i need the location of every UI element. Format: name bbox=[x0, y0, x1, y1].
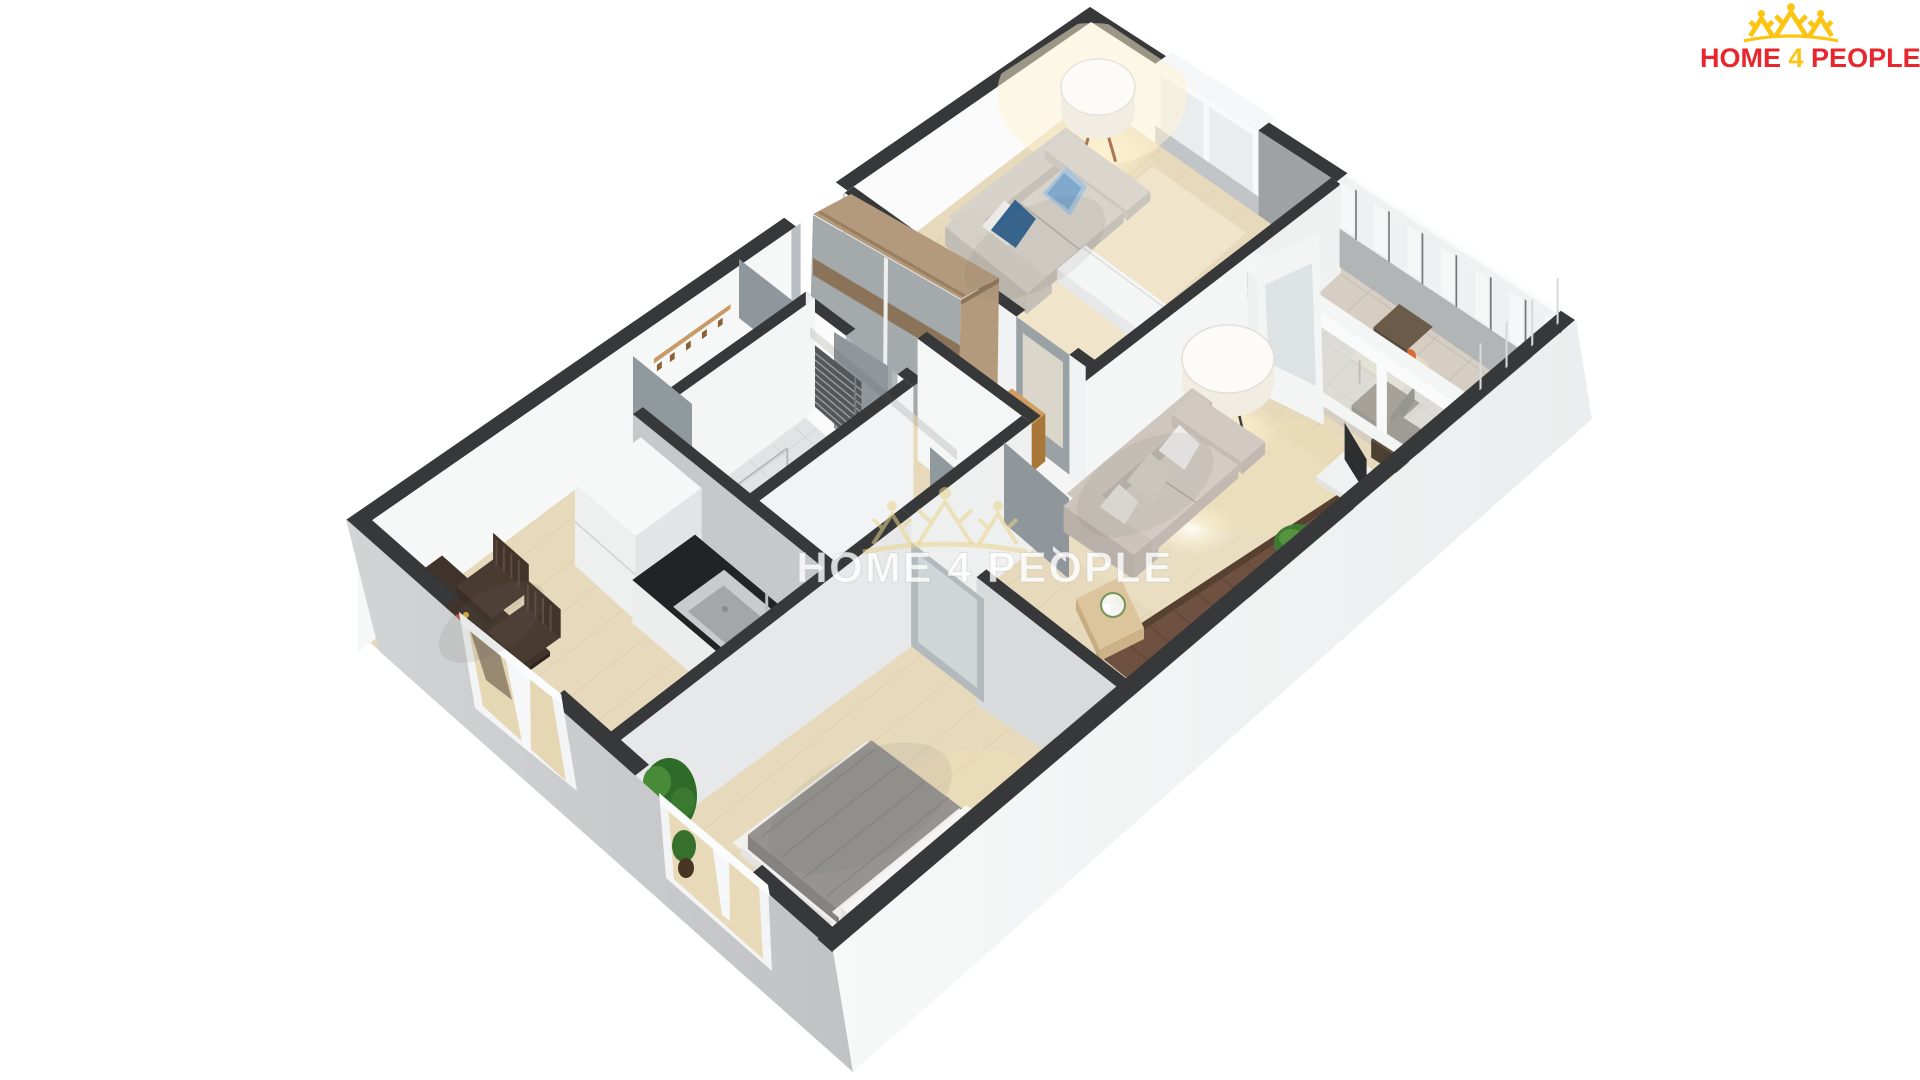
svg-text:HOME 4 PEOPLE: HOME 4 PEOPLE bbox=[1700, 43, 1920, 73]
svg-text:HOME 4 PEOPLE: HOME 4 PEOPLE bbox=[796, 544, 1173, 592]
